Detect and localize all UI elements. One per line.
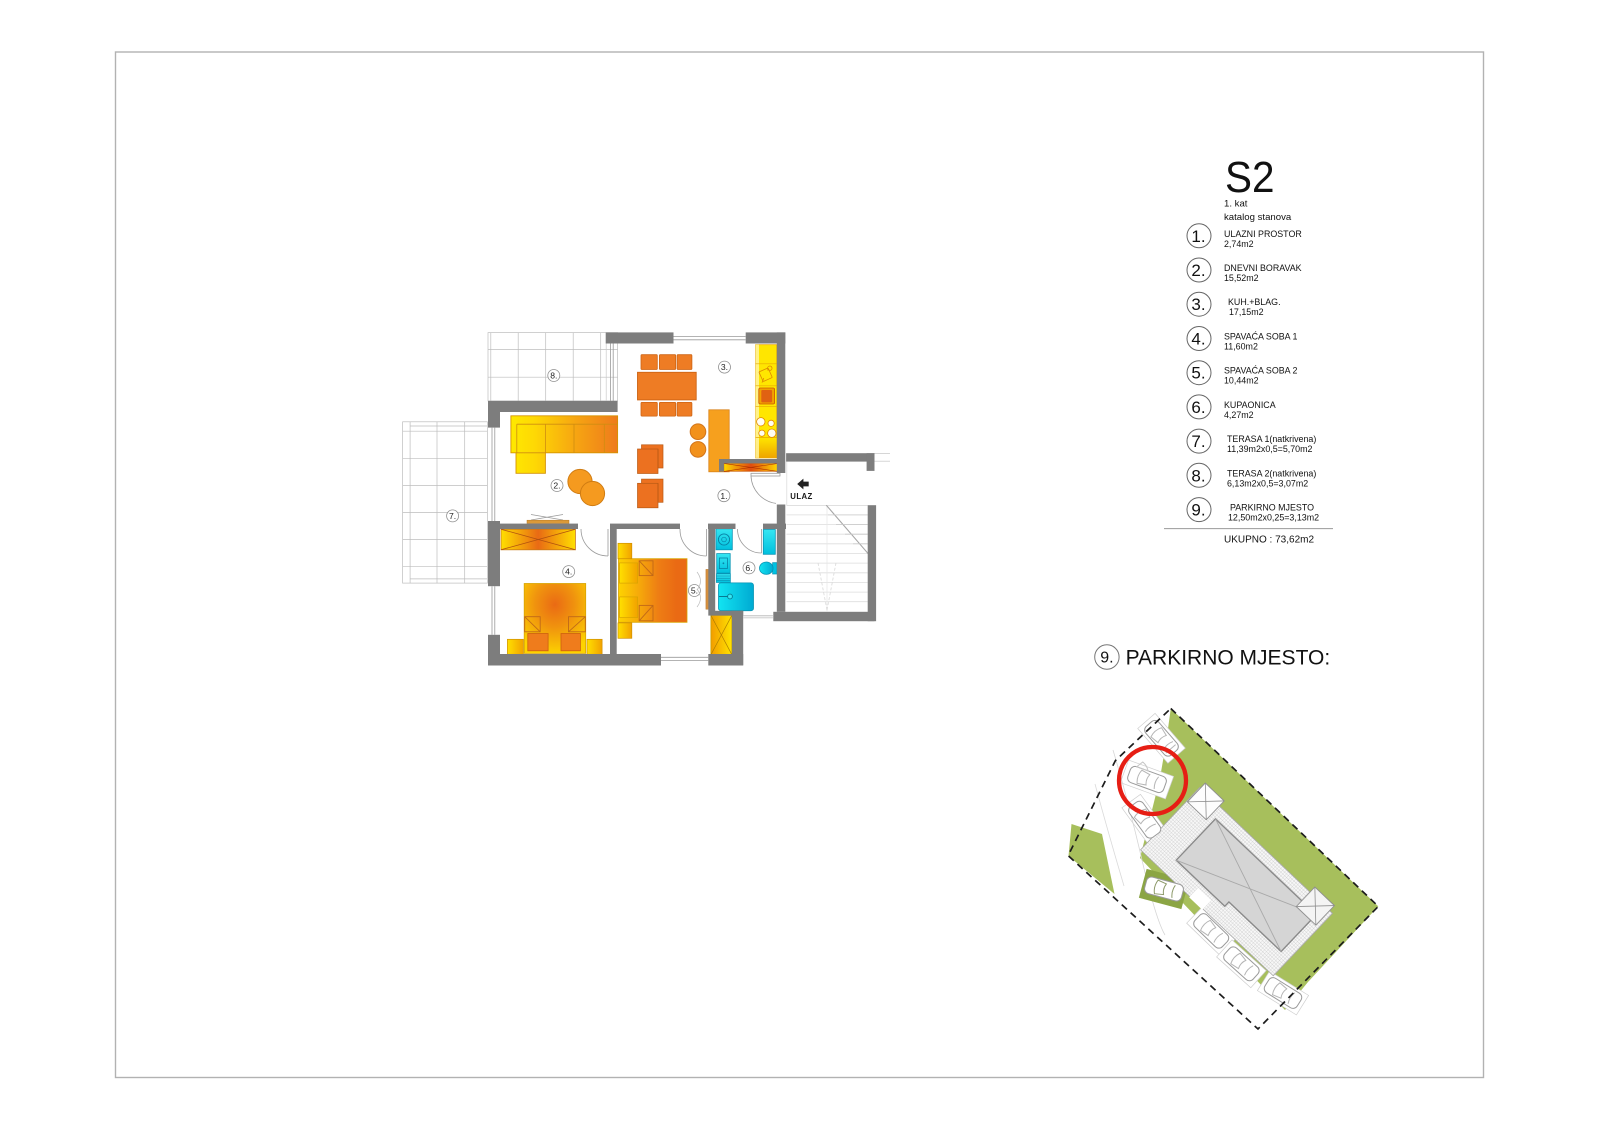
svg-text:11,39m2x0,5=5,70m2: 11,39m2x0,5=5,70m2 bbox=[1227, 444, 1313, 454]
svg-text:1.: 1. bbox=[1191, 227, 1205, 246]
svg-text:9.: 9. bbox=[1100, 650, 1113, 667]
svg-text:15,52m2: 15,52m2 bbox=[1224, 273, 1259, 283]
svg-text:KUH.+BLAG.: KUH.+BLAG. bbox=[1228, 297, 1281, 307]
svg-text:5.: 5. bbox=[1191, 364, 1205, 383]
svg-text:S2: S2 bbox=[1225, 153, 1275, 202]
svg-text:9.: 9. bbox=[1191, 501, 1205, 520]
svg-text:2,74m2: 2,74m2 bbox=[1224, 239, 1254, 249]
svg-text:KUPAONICA: KUPAONICA bbox=[1224, 400, 1276, 410]
svg-text:ULAZ: ULAZ bbox=[790, 492, 812, 501]
svg-text:katalog stanova: katalog stanova bbox=[1224, 212, 1292, 223]
svg-text:UKUPNO : 73,62m2: UKUPNO : 73,62m2 bbox=[1224, 535, 1314, 546]
svg-text:4.: 4. bbox=[565, 567, 572, 577]
svg-text:8.: 8. bbox=[550, 371, 557, 381]
svg-text:5.: 5. bbox=[691, 586, 698, 596]
svg-text:3.: 3. bbox=[721, 362, 728, 372]
svg-text:17,15m2: 17,15m2 bbox=[1229, 307, 1264, 317]
svg-text:3.: 3. bbox=[1191, 295, 1205, 314]
svg-text:ULAZNI PROSTOR: ULAZNI PROSTOR bbox=[1224, 229, 1302, 239]
svg-text:DNEVNI BORAVAK: DNEVNI BORAVAK bbox=[1224, 263, 1302, 273]
svg-text:2.: 2. bbox=[553, 481, 560, 491]
svg-text:PARKIRNO MJESTO: PARKIRNO MJESTO bbox=[1230, 503, 1314, 513]
svg-text:10,44m2: 10,44m2 bbox=[1224, 376, 1259, 386]
svg-text:TERASA 1(natkrivena): TERASA 1(natkrivena) bbox=[1227, 434, 1316, 444]
svg-text:4.: 4. bbox=[1191, 330, 1205, 349]
svg-text:4,27m2: 4,27m2 bbox=[1224, 410, 1254, 420]
svg-text:6,13m2x0,5=3,07m2: 6,13m2x0,5=3,07m2 bbox=[1227, 478, 1308, 488]
svg-text:11,60m2: 11,60m2 bbox=[1224, 342, 1258, 352]
svg-text:TERASA 2(natkrivena): TERASA 2(natkrivena) bbox=[1227, 468, 1316, 478]
svg-text:1.: 1. bbox=[720, 491, 727, 501]
svg-text:7.: 7. bbox=[1191, 432, 1205, 451]
svg-text:SPAVAĆA SOBA 1: SPAVAĆA SOBA 1 bbox=[1224, 332, 1298, 342]
svg-text:1. kat: 1. kat bbox=[1224, 199, 1248, 210]
svg-text:2.: 2. bbox=[1191, 261, 1205, 280]
svg-text:6.: 6. bbox=[1191, 398, 1205, 417]
svg-text:PARKIRNO MJESTO:: PARKIRNO MJESTO: bbox=[1126, 647, 1331, 670]
svg-text:6.: 6. bbox=[745, 563, 752, 573]
svg-text:7.: 7. bbox=[449, 511, 456, 521]
svg-text:12,50m2x0,25=3,13m2: 12,50m2x0,25=3,13m2 bbox=[1228, 513, 1319, 523]
svg-text:8.: 8. bbox=[1191, 466, 1205, 485]
svg-text:SPAVAĆA SOBA 2: SPAVAĆA SOBA 2 bbox=[1224, 366, 1298, 376]
